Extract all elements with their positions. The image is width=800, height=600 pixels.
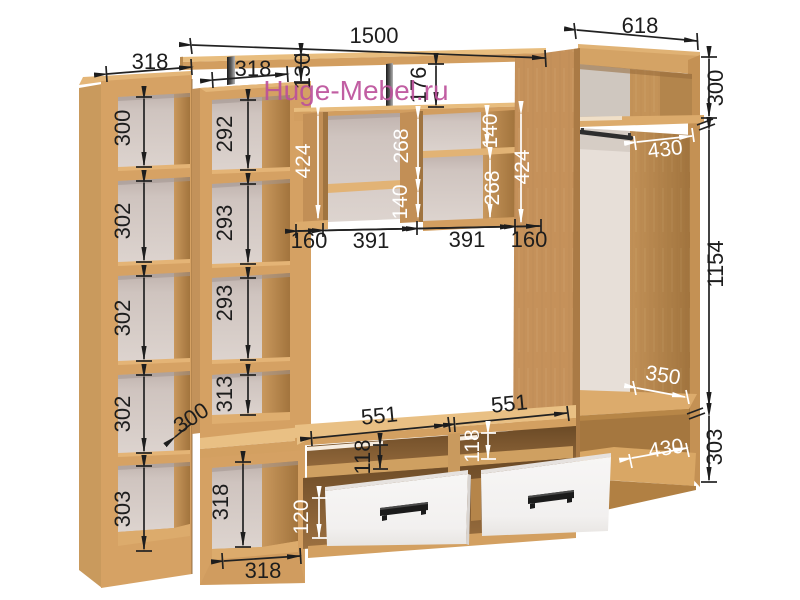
svg-text:391: 391 xyxy=(449,227,486,252)
svg-text:140: 140 xyxy=(479,113,502,148)
svg-text:120: 120 xyxy=(290,499,313,534)
svg-text:1500: 1500 xyxy=(350,23,399,48)
svg-text:318: 318 xyxy=(208,484,233,521)
svg-text:551: 551 xyxy=(360,401,399,429)
svg-text:1154: 1154 xyxy=(703,240,728,287)
svg-text:303: 303 xyxy=(702,429,727,466)
svg-text:318: 318 xyxy=(132,49,169,74)
svg-text:302: 302 xyxy=(110,300,135,337)
svg-text:300: 300 xyxy=(110,110,135,147)
svg-text:424: 424 xyxy=(292,143,315,178)
svg-text:551: 551 xyxy=(490,389,529,417)
svg-text:292: 292 xyxy=(212,116,237,153)
svg-text:618: 618 xyxy=(622,13,659,38)
svg-text:118: 118 xyxy=(461,429,484,462)
svg-text:268: 268 xyxy=(481,170,504,205)
svg-text:300: 300 xyxy=(703,70,728,107)
svg-text:293: 293 xyxy=(212,205,237,242)
svg-text:313: 313 xyxy=(212,376,237,413)
svg-text:430: 430 xyxy=(646,136,684,163)
svg-text:Huge-Mebel.ru: Huge-Mebel.ru xyxy=(263,75,448,106)
svg-text:293: 293 xyxy=(212,285,237,322)
svg-text:140: 140 xyxy=(389,184,412,219)
svg-text:118: 118 xyxy=(350,439,375,474)
svg-text:302: 302 xyxy=(110,396,135,433)
svg-text:302: 302 xyxy=(110,203,135,240)
svg-text:318: 318 xyxy=(245,558,282,583)
svg-text:424: 424 xyxy=(511,149,534,184)
svg-text:268: 268 xyxy=(390,128,413,163)
svg-text:303: 303 xyxy=(110,491,135,528)
svg-text:160: 160 xyxy=(511,227,548,252)
svg-text:391: 391 xyxy=(353,228,390,253)
svg-text:160: 160 xyxy=(291,228,328,253)
